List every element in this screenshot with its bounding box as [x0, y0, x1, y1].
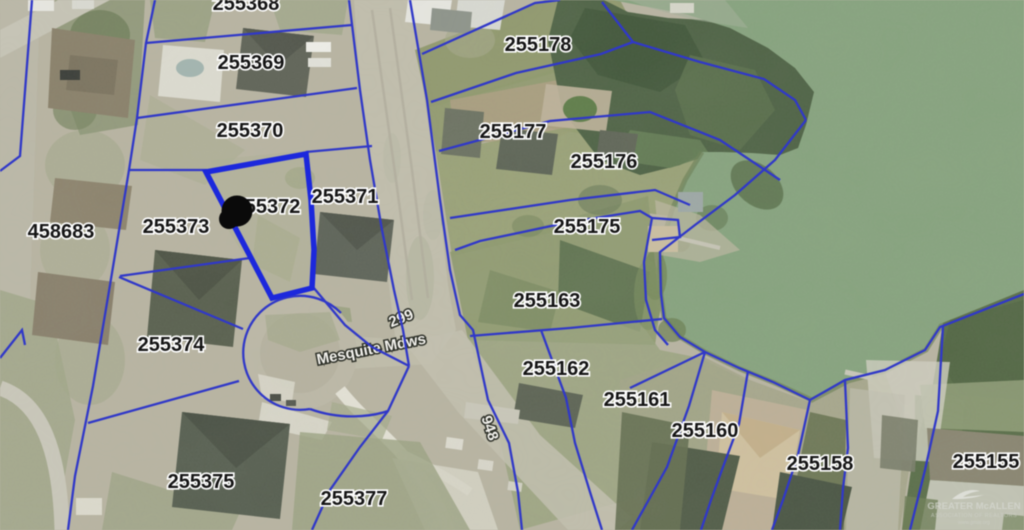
svg-text:255178: 255178: [505, 34, 572, 56]
svg-text:255370: 255370: [217, 120, 284, 142]
svg-text:255368: 255368: [213, 0, 280, 15]
svg-text:ASSOCIATION OF REALTORS: ASSOCIATION OF REALTORS: [931, 513, 1017, 519]
svg-text:255176: 255176: [571, 151, 638, 173]
svg-text:255162: 255162: [523, 358, 590, 380]
svg-text:255375: 255375: [168, 471, 235, 493]
svg-text:458683: 458683: [28, 221, 95, 243]
svg-text:255373: 255373: [143, 216, 210, 238]
svg-text:255161: 255161: [604, 389, 671, 411]
svg-text:255177: 255177: [480, 121, 547, 143]
svg-text:255163: 255163: [514, 290, 581, 312]
svg-text:www.gmar.org: www.gmar.org: [958, 520, 990, 526]
svg-text:255160: 255160: [672, 420, 739, 442]
svg-text:GREATER McALLEN: GREATER McALLEN: [927, 501, 1020, 512]
svg-text:255369: 255369: [218, 52, 285, 74]
svg-text:255175: 255175: [554, 216, 621, 238]
svg-text:255158: 255158: [787, 453, 854, 475]
svg-text:255371: 255371: [312, 186, 379, 208]
svg-text:255377: 255377: [321, 488, 388, 510]
svg-text:255374: 255374: [138, 334, 206, 356]
svg-text:255155: 255155: [953, 451, 1020, 473]
